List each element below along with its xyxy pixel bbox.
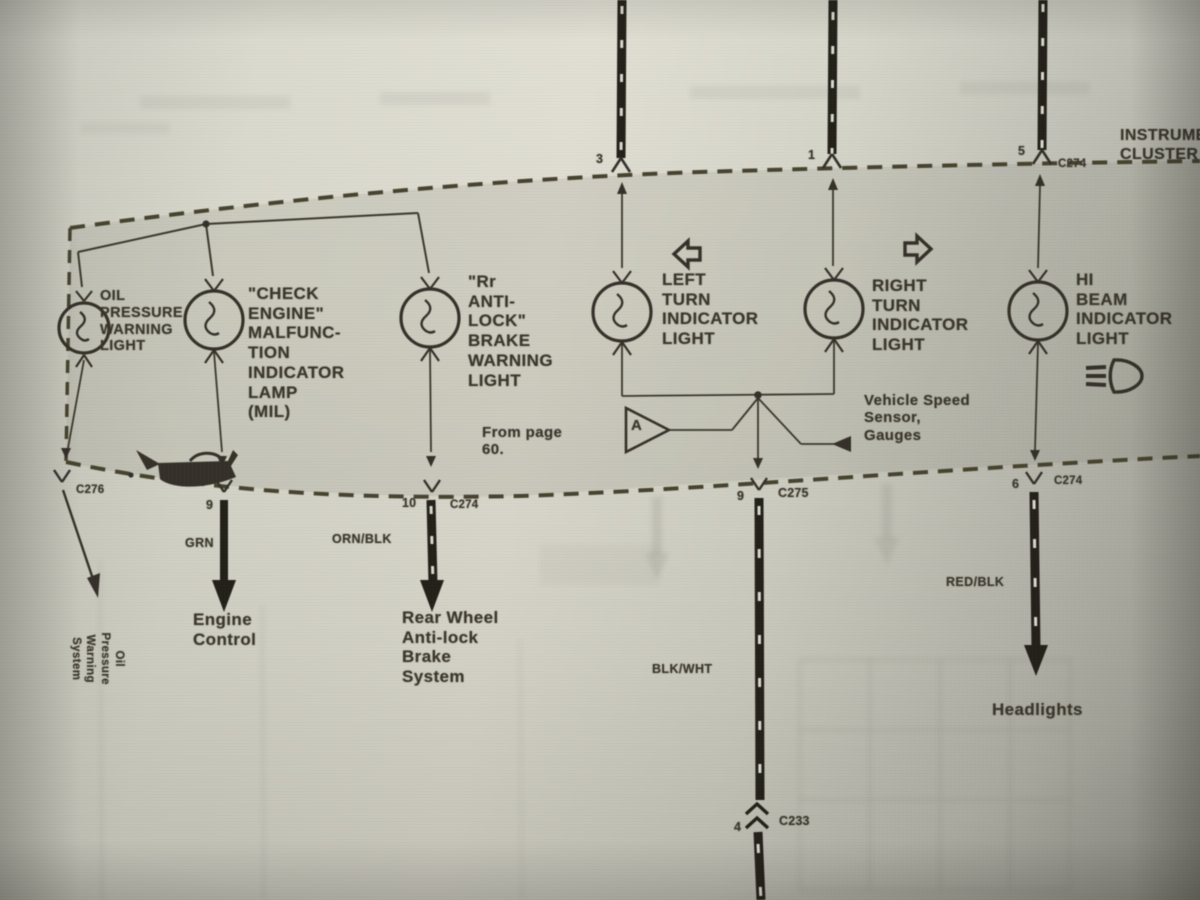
from-page-note: From page 60.	[482, 424, 562, 459]
right-turn-indicator-label: RIGHT TURN INDICATOR LIGHT	[872, 276, 968, 355]
connector-c276-label: C276	[76, 484, 104, 497]
connector-c233-label: C233	[779, 814, 810, 829]
connector-c274-top-label: C274	[1058, 158, 1086, 171]
connector-c274-right-label: C274	[1054, 475, 1082, 488]
pin-1-label: 1	[808, 148, 815, 163]
connector-c275-label: C275	[778, 486, 809, 501]
oil-pressure-warning-system-destination: Oil Pressure Warning System	[68, 624, 126, 694]
pin-5-label: 5	[1018, 144, 1025, 159]
rr-antilock-brake-warning-label: "Rr ANTI- LOCK" BRAKE WARNING LIGHT	[468, 272, 553, 390]
connector-c274-mid-label: C274	[450, 499, 478, 512]
wiring-diagram-graphics	[0, 0, 1200, 900]
instrument-cluster-dashed-border	[66, 161, 1200, 497]
hi-beam-indicator-label: HI BEAM INDICATOR LIGHT	[1076, 270, 1172, 349]
wire-color-blk-wht-label: BLK/WHT	[652, 662, 712, 677]
manual-photo: INSTRUMENT CLUSTER 3 1 5 C274 OIL PRESSU…	[0, 0, 1200, 900]
vehicle-speed-sensor-note: Vehicle Speed Sensor, Gauges	[864, 392, 970, 444]
wire-color-red-blk-label: RED/BLK	[946, 575, 1004, 590]
wire-color-grn-label: GRN	[185, 536, 214, 551]
pin-9-turn-label: 9	[737, 489, 744, 504]
pin-6-label: 6	[1012, 477, 1019, 492]
check-engine-mil-label: "CHECK ENGINE" MALFUNC- TION INDICATOR L…	[248, 284, 344, 422]
oil-pressure-warning-light-label: OIL PRESSURE WARNING LIGHT	[100, 288, 183, 355]
headlights-destination: Headlights	[992, 700, 1083, 720]
pin-4-label: 4	[734, 820, 741, 835]
pin-9-engine-label: 9	[206, 498, 213, 513]
instrument-cluster-title: INSTRUMENT CLUSTER	[1120, 126, 1200, 164]
junction-dot	[202, 220, 209, 227]
engine-control-destination: Engine Control	[193, 610, 256, 649]
wire-color-orn-blk-label: ORN/BLK	[332, 532, 392, 547]
wiring-diagram: INSTRUMENT CLUSTER 3 1 5 C274 OIL PRESSU…	[0, 0, 1200, 900]
left-turn-indicator-label: LEFT TURN INDICATOR LIGHT	[662, 270, 758, 349]
rear-abs-destination: Rear Wheel Anti-lock Brake System	[402, 608, 499, 687]
amplifier-a-label: A	[631, 417, 642, 434]
pin-3-label: 3	[596, 152, 603, 167]
band-shading	[66, 161, 1200, 497]
blk-wht-wire	[746, 478, 768, 900]
pin-10-label: 10	[402, 496, 416, 511]
junction-dot	[754, 391, 762, 399]
